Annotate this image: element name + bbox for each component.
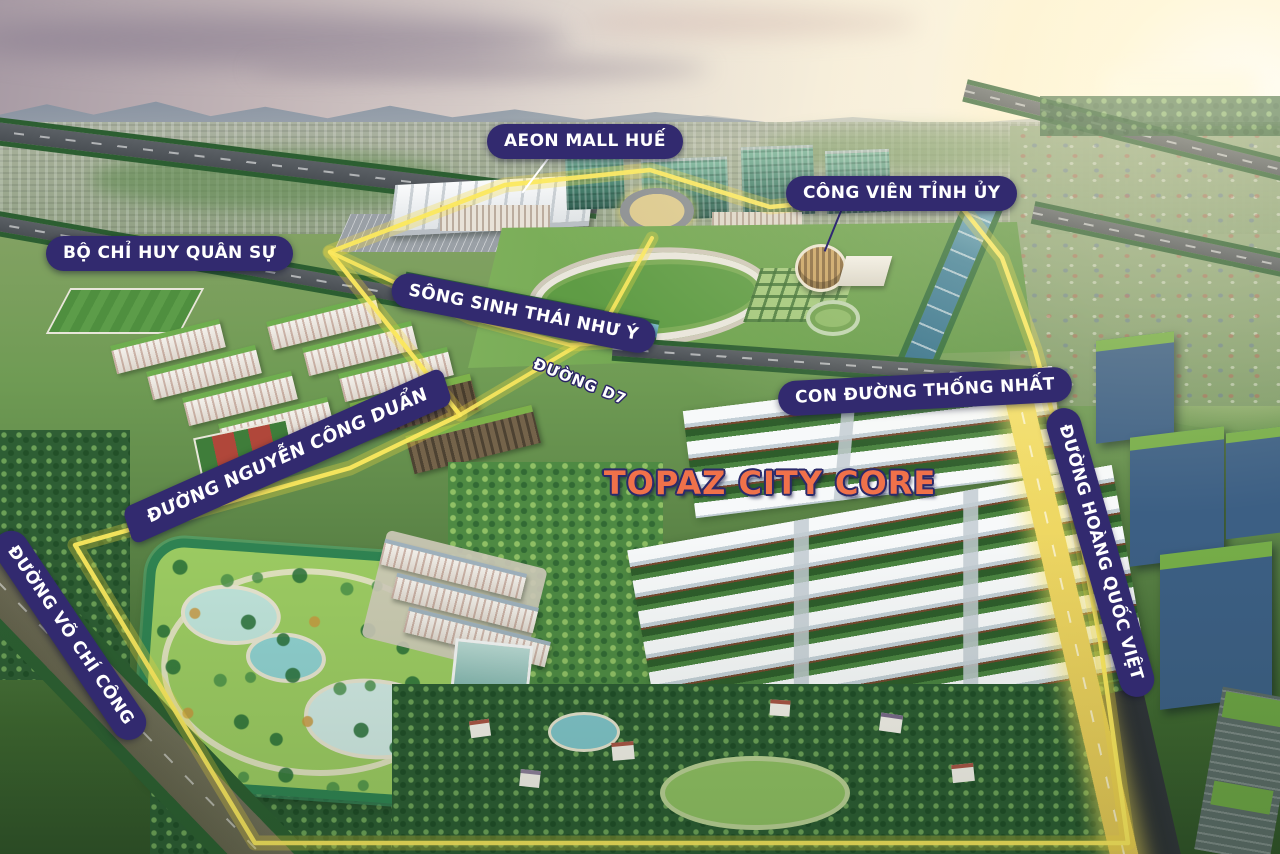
glass-tower [1226,427,1280,540]
glass-tower [1130,426,1224,567]
cloud-pink [580,10,920,36]
auditorium-wing [838,256,893,286]
garden-circle [806,300,860,336]
military-field [46,288,204,334]
cloud-streak [250,56,710,82]
label-bo-chi-huy-quan-su: BỘ CHỈ HUY QUÂN SỰ [46,236,293,271]
title-topaz-city-core: TOPAZ CITY CORE [604,464,936,502]
villa-lawn [660,756,850,830]
label-cong-vien-tinh-uy: CÔNG VIÊN TỈNH ỦY [786,176,1017,211]
villa-house [769,699,790,716]
villa-house [879,713,903,734]
aerial-masterplan-render: AEON MALL HUẾ CÔNG VIÊN TỈNH ỦY BỘ CHỈ H… [0,0,1280,854]
villa-house [611,741,634,761]
villa-house [469,719,491,739]
label-aeon-mall: AEON MALL HUẾ [487,124,683,159]
green-roof [1222,691,1280,728]
green-roof [1210,781,1273,815]
midrise-apartments [440,205,550,231]
villa-house [951,763,975,783]
villa-house [519,769,541,788]
tree-belt [1040,96,1280,136]
glass-tower [1160,541,1272,710]
villa-pond [548,712,620,752]
glass-tower [1096,331,1174,444]
office-tower [565,151,625,210]
